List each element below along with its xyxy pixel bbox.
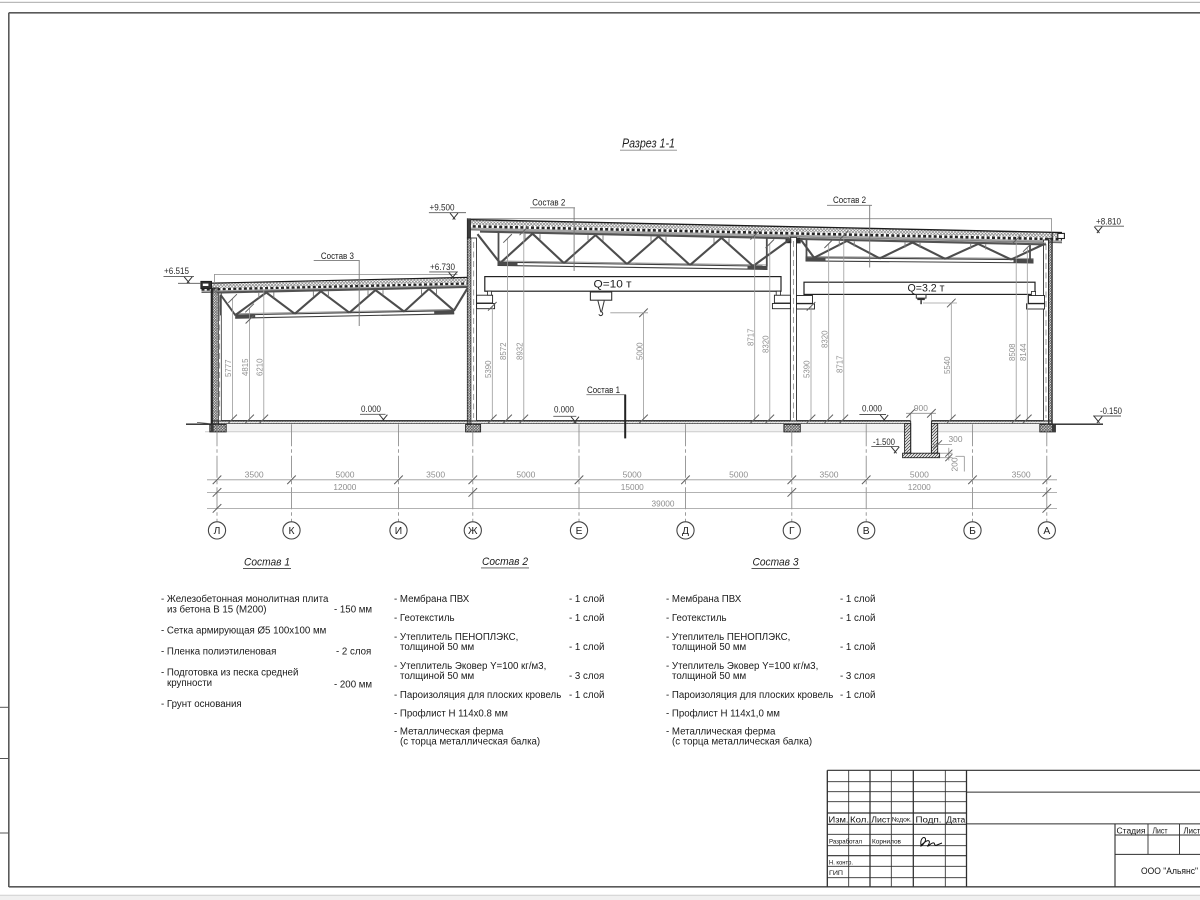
svg-text:3500: 3500 [1012, 470, 1031, 479]
svg-text:Л: Л [214, 526, 221, 537]
svg-text:- 1 слой: - 1 слой [569, 642, 604, 653]
svg-text:5540: 5540 [943, 356, 952, 374]
svg-text:толщиной 50 мм: толщиной 50 мм [672, 642, 746, 653]
svg-text:+8.810: +8.810 [1096, 217, 1121, 227]
svg-text:12000: 12000 [333, 483, 356, 492]
svg-text:8572: 8572 [499, 342, 508, 360]
svg-text:Состав 3: Состав 3 [321, 251, 354, 261]
svg-text:Q=3.2 т: Q=3.2 т [908, 283, 945, 295]
svg-text:- Железобетонная монолитная п: - Железобетонная монолитная плита [161, 594, 329, 605]
svg-text:5000: 5000 [910, 470, 929, 479]
svg-text:Состав 2: Состав 2 [532, 197, 565, 207]
svg-text:Разработал: Разработал [829, 838, 862, 846]
svg-text:- 2 слоя: - 2 слоя [336, 647, 371, 658]
svg-text:И: И [395, 526, 402, 537]
svg-text:(с торца металлическая балка): (с торца металлическая балка) [672, 736, 812, 747]
svg-text:8144: 8144 [1019, 343, 1028, 361]
svg-text:3500: 3500 [245, 470, 264, 479]
svg-text:300: 300 [949, 435, 963, 444]
svg-text:8717: 8717 [835, 355, 844, 373]
svg-text:3500: 3500 [820, 470, 839, 479]
svg-text:+9.500: +9.500 [430, 203, 455, 213]
svg-text:Подп.: Подп. [916, 814, 942, 824]
svg-text:5390: 5390 [484, 360, 493, 378]
svg-text:39000: 39000 [652, 499, 675, 508]
svg-text:4815: 4815 [241, 358, 250, 376]
svg-text:- Пароизоляция для плоских кро: - Пароизоляция для плоских кровель [666, 690, 833, 701]
svg-text:- 1 слой: - 1 слой [569, 594, 604, 605]
svg-text:Корнилов: Корнилов [872, 838, 901, 845]
svg-text:5000: 5000 [635, 342, 644, 360]
svg-text:Состав 2: Состав 2 [833, 195, 866, 205]
svg-text:0.000: 0.000 [361, 404, 381, 414]
svg-text:- Профлист Н 114х0.8 мм: - Профлист Н 114х0.8 мм [394, 708, 508, 719]
svg-text:Лист: Лист [1184, 825, 1200, 835]
svg-text:-0.150: -0.150 [1100, 406, 1122, 416]
svg-text:Дата: Дата [946, 814, 965, 824]
svg-text:900: 900 [914, 404, 928, 413]
svg-text:5000: 5000 [336, 470, 355, 479]
svg-text:- Пленка полиэтиленовая: - Пленка полиэтиленовая [161, 647, 276, 658]
svg-text:Состав 1: Состав 1 [587, 385, 620, 395]
svg-text:ГИП: ГИП [829, 870, 843, 877]
svg-text:Состав 3: Состав 3 [753, 557, 800, 569]
svg-text:5777: 5777 [224, 359, 233, 377]
svg-text:- Мембрана ПВХ: - Мембрана ПВХ [666, 594, 742, 605]
svg-text:В: В [863, 526, 870, 537]
svg-text:8508: 8508 [1008, 343, 1017, 361]
svg-text:- 1 слой: - 1 слой [840, 690, 875, 701]
svg-text:- Сетка армирующая Ø5 100х100: - Сетка армирующая Ø5 100х100 мм [161, 626, 326, 637]
svg-text:5390: 5390 [803, 360, 812, 378]
svg-text:- 3 слоя: - 3 слоя [840, 671, 875, 682]
svg-text:- Мембрана ПВХ: - Мембрана ПВХ [394, 594, 470, 605]
svg-text:+6.515: +6.515 [164, 266, 189, 276]
svg-text:15000: 15000 [621, 483, 644, 492]
svg-text:6210: 6210 [255, 358, 264, 376]
svg-text:толщиной 50 мм: толщиной 50 мм [400, 642, 474, 653]
svg-text:толщиной 50 мм: толщиной 50 мм [672, 671, 746, 682]
svg-text:№док.: №док. [892, 817, 912, 824]
svg-text:Разрез 1-1: Разрез 1-1 [622, 137, 675, 151]
svg-text:12000: 12000 [908, 483, 931, 492]
svg-text:- Геотекстиль: - Геотекстиль [394, 613, 455, 624]
svg-text:8932: 8932 [515, 342, 524, 360]
svg-text:Кол.: Кол. [850, 814, 869, 824]
svg-text:Н. контр.: Н. контр. [829, 860, 853, 867]
svg-text:0.000: 0.000 [554, 405, 574, 415]
svg-text:Изм.: Изм. [829, 814, 849, 824]
svg-text:0.000: 0.000 [862, 404, 882, 414]
svg-text:5000: 5000 [623, 470, 642, 479]
svg-text:толщиной 50 мм: толщиной 50 мм [400, 671, 474, 682]
svg-text:Г: Г [789, 526, 795, 537]
svg-text:8320: 8320 [761, 335, 770, 353]
svg-text:- 200 мм: - 200 мм [334, 680, 372, 691]
svg-text:- 1 слой: - 1 слой [569, 690, 604, 701]
svg-text:Ж: Ж [468, 526, 478, 537]
svg-text:Б: Б [969, 526, 976, 537]
svg-text:- 150 мм: - 150 мм [334, 604, 372, 615]
svg-text:-1.500: -1.500 [873, 437, 895, 447]
svg-text:+6.730: +6.730 [430, 262, 455, 272]
svg-text:8320: 8320 [820, 330, 829, 348]
svg-text:8717: 8717 [746, 328, 755, 346]
svg-text:200: 200 [951, 457, 960, 471]
svg-text:- 3 слоя: - 3 слоя [569, 671, 604, 682]
svg-text:- Грунт основания: - Грунт основания [161, 699, 242, 710]
svg-text:ООО "Альянс": ООО "Альянс" [1141, 866, 1198, 876]
svg-text:5000: 5000 [729, 470, 748, 479]
svg-text:(с торца металлическая балка): (с торца металлическая балка) [400, 736, 540, 747]
svg-text:Д: Д [682, 526, 689, 537]
svg-text:- 1 слой: - 1 слой [840, 594, 875, 605]
svg-text:- Пароизоляция для плоских кро: - Пароизоляция для плоских кровель [394, 690, 561, 701]
svg-text:5000: 5000 [516, 470, 535, 479]
svg-text:из бетона В 15 (М200): из бетона В 15 (М200) [167, 604, 267, 615]
svg-text:Е: Е [576, 526, 583, 537]
svg-text:- Подготовка из песка средней: - Подготовка из песка средней [161, 668, 298, 679]
svg-text:А: А [1043, 526, 1050, 537]
svg-text:крупности: крупности [167, 678, 212, 689]
svg-text:К: К [289, 526, 295, 537]
svg-text:3500: 3500 [426, 470, 445, 479]
svg-text:- 1 слой: - 1 слой [840, 613, 875, 624]
svg-text:Лист: Лист [871, 814, 890, 824]
svg-text:Лист: Лист [1153, 825, 1168, 835]
svg-text:Состав 2: Состав 2 [482, 556, 528, 568]
svg-text:Стадия: Стадия [1117, 825, 1146, 835]
svg-text:- Геотекстиль: - Геотекстиль [666, 613, 727, 624]
svg-text:Состав 1: Состав 1 [244, 557, 290, 569]
svg-text:Q=10 т: Q=10 т [594, 279, 632, 291]
svg-text:- 1 слой: - 1 слой [569, 613, 604, 624]
svg-text:- Профлист Н 114х1,0 мм: - Профлист Н 114х1,0 мм [666, 708, 780, 719]
svg-text:- 1 слой: - 1 слой [840, 642, 875, 653]
